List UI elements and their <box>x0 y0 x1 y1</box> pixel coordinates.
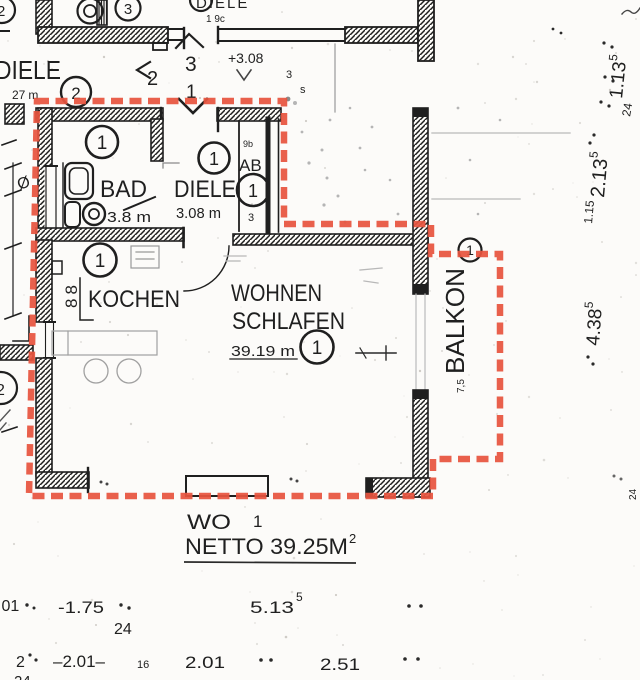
svg-text:BALKON: BALKON <box>440 268 470 374</box>
svg-text:SCHLAFEN: SCHLAFEN <box>232 308 345 335</box>
svg-text:2.51: 2.51 <box>320 655 360 674</box>
svg-text:1: 1 <box>253 512 262 531</box>
svg-text:24: 24 <box>619 102 635 118</box>
svg-text:1: 1 <box>97 133 108 154</box>
svg-text:3: 3 <box>286 69 292 81</box>
svg-text:3: 3 <box>248 212 254 224</box>
svg-text:1: 1 <box>312 338 323 359</box>
svg-text:3.08 m: 3.08 m <box>176 206 221 222</box>
svg-text:9b: 9b <box>243 139 253 149</box>
svg-text:.01: .01 <box>0 598 19 615</box>
svg-text:2: 2 <box>16 654 25 671</box>
svg-text:–2.01–: –2.01– <box>53 652 106 671</box>
svg-text:1: 1 <box>248 181 258 201</box>
svg-text:3.8 m: 3.8 m <box>107 210 151 226</box>
svg-text:1 9c: 1 9c <box>206 14 225 25</box>
svg-text:24: 24 <box>14 673 31 680</box>
svg-text:AB: AB <box>239 156 262 175</box>
svg-text:BAD: BAD <box>100 176 147 203</box>
svg-text:WOHNEN: WOHNEN <box>231 280 322 307</box>
svg-text:5.13: 5.13 <box>250 598 294 617</box>
svg-text:1: 1 <box>209 149 219 169</box>
svg-text:5: 5 <box>296 590 303 604</box>
svg-text:2: 2 <box>147 68 158 90</box>
svg-text:16: 16 <box>137 659 149 671</box>
svg-text:DIELE: DIELE <box>196 0 249 12</box>
svg-text:3: 3 <box>185 53 197 76</box>
svg-text:DIELE: DIELE <box>0 55 61 85</box>
svg-text:7,5: 7,5 <box>456 379 467 393</box>
svg-text:4.38: 4.38 <box>583 308 607 346</box>
svg-text:2: 2 <box>0 382 5 399</box>
svg-text:+3.08: +3.08 <box>228 50 264 66</box>
svg-text:WO: WO <box>187 511 231 534</box>
svg-text:2: 2 <box>349 531 356 546</box>
svg-text:2.01: 2.01 <box>185 653 225 672</box>
svg-text:NETTO 39.25M: NETTO 39.25M <box>185 534 348 559</box>
svg-text:24: 24 <box>628 488 639 500</box>
svg-text:5: 5 <box>582 301 596 309</box>
svg-text:3: 3 <box>124 1 132 18</box>
svg-text:1: 1 <box>95 251 106 272</box>
svg-text:s: s <box>300 84 306 96</box>
svg-text:KOCHEN: KOCHEN <box>88 286 180 313</box>
svg-text:1.13: 1.13 <box>606 61 631 100</box>
svg-text:DIELE: DIELE <box>174 176 236 203</box>
svg-text:2.13: 2.13 <box>587 158 612 199</box>
svg-text:24: 24 <box>114 621 132 638</box>
svg-text:39.19 m: 39.19 m <box>231 343 295 360</box>
svg-text:1.15: 1.15 <box>581 199 597 224</box>
svg-text:-1.75: -1.75 <box>58 598 104 617</box>
svg-text:88: 88 <box>62 281 81 308</box>
svg-text:2: 2 <box>0 3 5 20</box>
